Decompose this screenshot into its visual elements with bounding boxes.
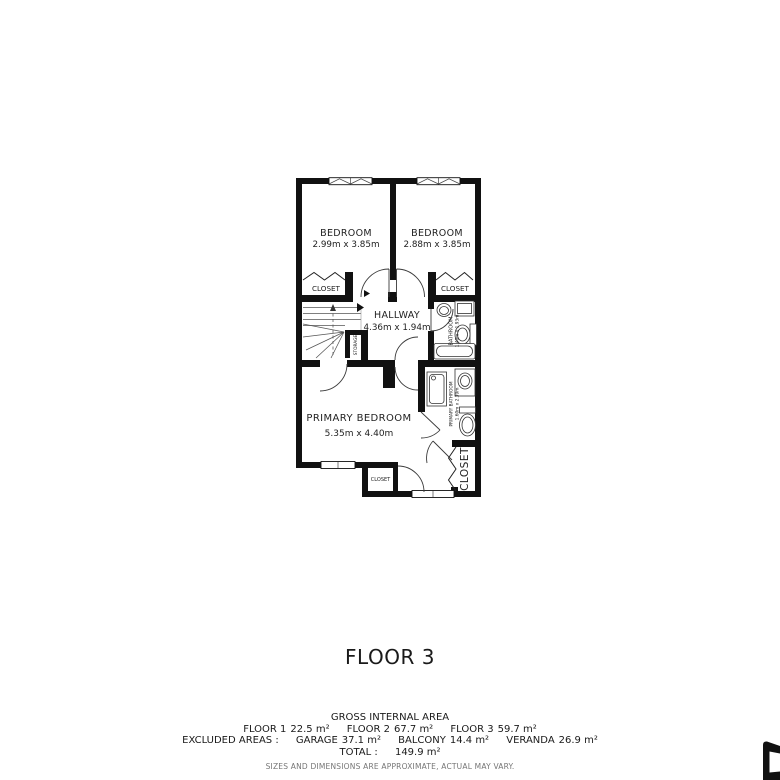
primary-bathroom-label: PRIMARY BATHROOM: [449, 381, 455, 426]
bifold-closet-right: [436, 273, 473, 281]
floor1-area: FLOOR 122.5 m²: [243, 724, 329, 735]
bathroom-dims: 1.40m x 1.93m: [455, 315, 461, 348]
hallway-dims: 4.36m x 1.94m: [363, 323, 430, 333]
door-bedroom-right: [397, 269, 425, 297]
bedroom-right-label: BEDROOM: [411, 228, 463, 239]
floor3-area: FLOOR 359.7 m²: [450, 724, 536, 735]
stairs-direction-marker: [357, 303, 364, 312]
garage-area: GARAGE37.1 m²: [296, 735, 381, 746]
bathroom-label: BATHROOM: [449, 317, 455, 346]
balcony-area: BALCONY14.4 m²: [398, 735, 489, 746]
toilet-tank-icon: [460, 407, 476, 413]
storage-label: STORAGE: [353, 334, 359, 355]
total-line: TOTAL : 149.9 m²: [0, 747, 780, 759]
bedroom-left-dims: 2.99m x 3.85m: [312, 240, 379, 250]
total-label: TOTAL :: [339, 747, 377, 758]
closet-primary-label: CLOSET: [459, 447, 471, 491]
toilet-tank-icon: [470, 324, 477, 345]
door-primary-bathroom: [421, 412, 440, 438]
bifold-closet-primary: [449, 447, 457, 491]
door-hallway-swing-down: [395, 367, 418, 390]
bifold-closet-left: [303, 273, 345, 281]
hallway-label: HALLWAY: [374, 310, 420, 321]
disclaimer-text: SIZES AND DIMENSIONS ARE APPROXIMATE, AC…: [0, 761, 780, 773]
room-labels: BEDROOM 2.99m x 3.85m BEDROOM 2.88m x 3.…: [306, 228, 471, 491]
primary-bedroom-label: PRIMARY BEDROOM: [306, 413, 411, 424]
primary-bedroom-dims: 5.35m x 4.40m: [325, 429, 394, 439]
floor-title: FLOOR 3: [0, 645, 780, 669]
door-stairs-to-primary: [320, 364, 347, 391]
bedroom-right-dims: 2.88m x 3.85m: [403, 240, 470, 250]
bedroom-left-label: BEDROOM: [320, 228, 372, 239]
closet-right-label: CLOSET: [441, 284, 470, 293]
floorplan-page: { "plan": { "bedroom_left": { "name": "B…: [0, 0, 780, 780]
closet-left-label: CLOSET: [312, 284, 341, 293]
excluded-label: EXCLUDED AREAS :: [182, 735, 279, 746]
total-value: 149.9 m²: [395, 747, 441, 758]
gross-area-heading: GROSS INTERNAL AREA: [0, 712, 780, 724]
area-summary: GROSS INTERNAL AREA FLOOR 122.5 m² FLOOR…: [0, 712, 780, 773]
floor2-area: FLOOR 267.7 m²: [347, 724, 433, 735]
floors-line: FLOOR 122.5 m² FLOOR 267.7 m² FLOOR 359.…: [0, 724, 780, 736]
door-closet-small: [398, 466, 424, 492]
excluded-line: EXCLUDED AREAS : GARAGE37.1 m² BALCONY14…: [0, 735, 780, 747]
door-primary-closet-entry: [427, 441, 452, 463]
door-hallway-swing-up: [395, 337, 418, 360]
closet-small-label: CLOSET: [371, 477, 391, 483]
brand-logo: [760, 740, 780, 780]
door-jamb-marker: [364, 290, 370, 297]
primary-bathroom-dims: 1.60m x 2.39m: [455, 388, 461, 421]
veranda-area: VERANDA26.9 m²: [506, 735, 598, 746]
